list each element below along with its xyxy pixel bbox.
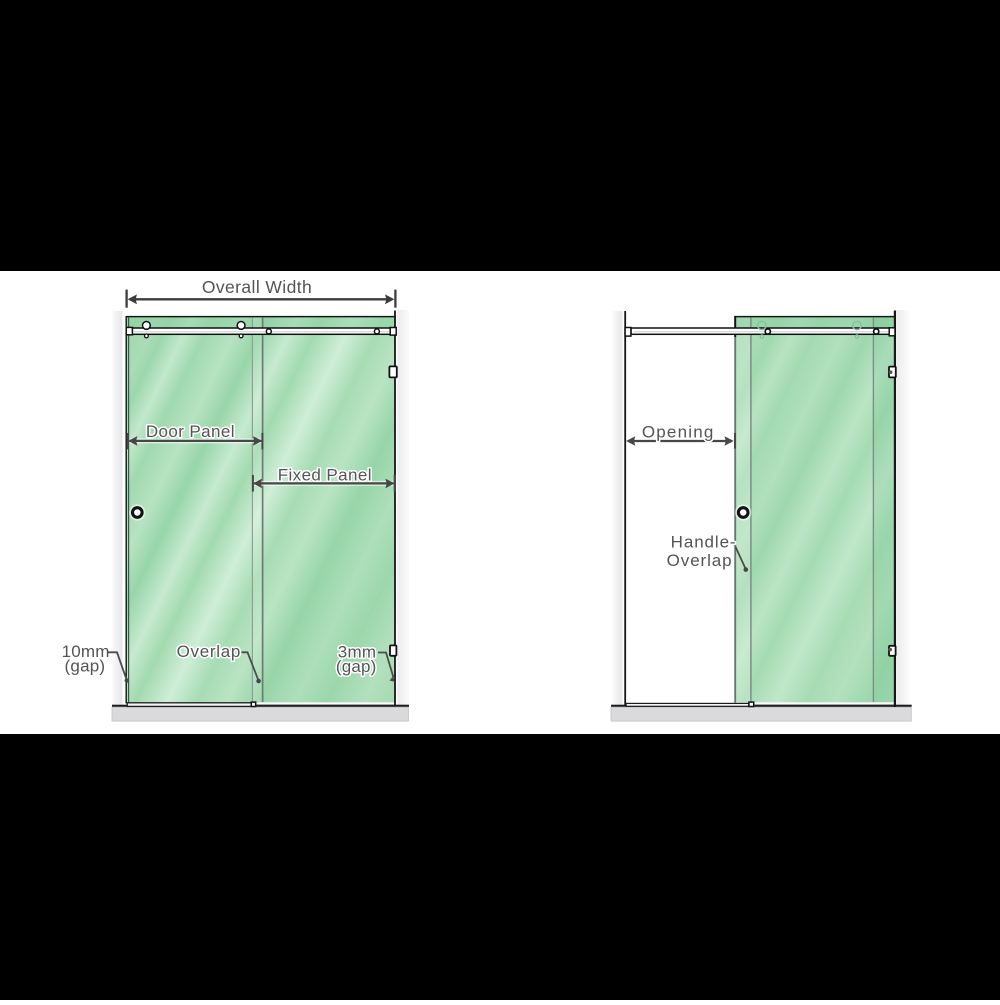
svg-text:Opening: Opening [642, 423, 715, 442]
svg-text:Overall Width: Overall Width [202, 277, 312, 297]
svg-text:Door Panel: Door Panel [146, 422, 235, 441]
svg-text:Fixed Panel: Fixed Panel [278, 466, 372, 485]
svg-text:Handle-: Handle- [671, 532, 737, 551]
svg-text:Overlap: Overlap [667, 551, 733, 570]
svg-text:Overlap: Overlap [177, 642, 241, 661]
svg-text:(gap): (gap) [336, 657, 377, 676]
svg-text:(gap): (gap) [65, 656, 106, 675]
